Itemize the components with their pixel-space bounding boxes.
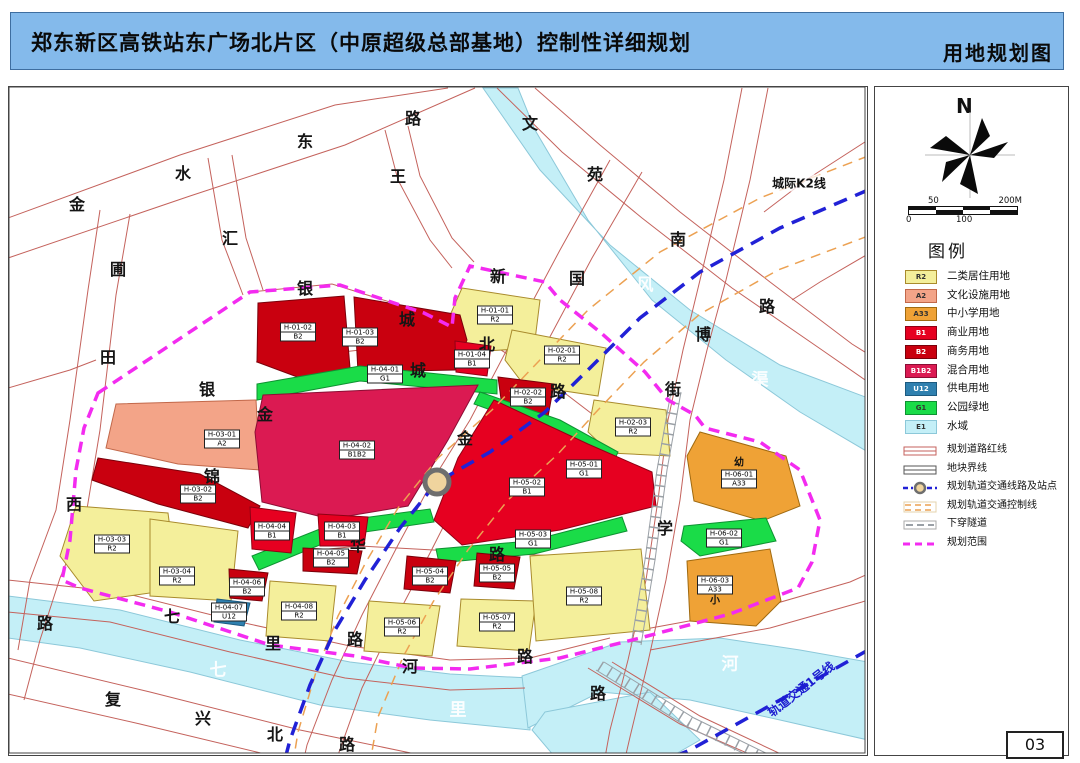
road-label: 路 — [339, 731, 355, 755]
road-label: 锦 — [204, 463, 220, 487]
legend-label-B1B2: 混合用地 — [947, 364, 989, 377]
road-label: 王 — [390, 163, 406, 187]
parcel-label-H-03-01: H-03-01A2 — [204, 430, 240, 449]
road-label: 兴 — [195, 705, 211, 729]
road-label: 路 — [517, 643, 533, 667]
road-label: 路 — [590, 680, 606, 704]
legend-label-R2: 二类居住用地 — [947, 270, 1010, 283]
parcel-label-H-01-01: H-01-01R2 — [477, 306, 513, 325]
road-label: 田 — [100, 344, 116, 368]
legend-label-block_line: 地块界线 — [947, 462, 987, 475]
scale-0: 0 — [906, 215, 911, 225]
parcel-label-H-04-03: H-04-03B1 — [324, 522, 360, 541]
road-label: 博 — [695, 321, 711, 345]
road-label: 汇 — [222, 225, 238, 249]
legend-label-rail_control: 规划轨道交通控制线 — [947, 499, 1037, 512]
road-label: 路 — [759, 293, 775, 317]
water-label: 河 — [722, 650, 739, 675]
road-label: 城 — [399, 306, 415, 330]
legend-swatch-B1: B1 — [905, 326, 937, 340]
legend-label-U12: 供电用地 — [947, 382, 989, 395]
legend-swatch-B2: B2 — [905, 345, 937, 359]
road-label: 北 — [267, 721, 283, 745]
sheet-subtitle: 用地规划图 — [943, 37, 1053, 66]
legend-label-B1: 商业用地 — [947, 326, 989, 339]
parcel-label-H-01-03: H-01-03B2 — [342, 328, 378, 347]
parcel-label-H-05-04: H-05-04B2 — [412, 567, 448, 586]
road-label: 圃 — [110, 256, 126, 280]
scale-200m: 200M — [998, 196, 1022, 206]
road-label: 路 — [489, 541, 505, 565]
legend-swatch-B1B2: B1B2 — [905, 364, 937, 378]
water-label: 七 — [210, 656, 227, 681]
road-label: 复 — [105, 686, 121, 710]
road-label: 路 — [405, 105, 421, 129]
legend-symbol-road_red — [903, 443, 937, 457]
parcel-label-H-04-07: H-04-07U12 — [211, 603, 247, 622]
map-frame — [8, 86, 868, 756]
parcel-label-H-06-02: H-06-02G1 — [706, 529, 742, 548]
road-label: 水 — [175, 160, 191, 184]
legend-symbol-tunnel — [903, 517, 937, 531]
road-label: 城 — [410, 357, 426, 381]
road-label: 苑 — [587, 161, 603, 185]
page-number: 03 — [1006, 731, 1064, 759]
road-label: 街 — [665, 376, 681, 400]
parcel-label-H-05-02: H-05-02B1 — [509, 478, 545, 497]
parcel-label-H-05-03: H-05-03G1 — [515, 530, 551, 549]
road-label: 七 — [164, 603, 180, 627]
parcel-label-H-01-04: H-01-04B1 — [454, 350, 490, 369]
parcel-label-H-03-03: H-03-03R2 — [94, 535, 130, 554]
legend-title: 图例 — [928, 237, 968, 262]
road-label: 国 — [569, 265, 585, 289]
road-label: 路 — [550, 378, 566, 402]
parcel-label-H-06-03: H-06-03A33 — [697, 576, 733, 595]
parcel-label-H-05-07: H-05-07R2 — [479, 613, 515, 632]
road-label: 银 — [297, 275, 313, 299]
parcel-label-H-05-01: H-05-01G1 — [566, 460, 602, 479]
parcel-label-H-02-03: H-02-03R2 — [615, 418, 651, 437]
water-label: 里 — [450, 696, 467, 721]
compass-icon — [920, 110, 1020, 200]
parcel-label-H-03-02: H-03-02B2 — [180, 485, 216, 504]
legend-label-tunnel: 下穿隧道 — [947, 517, 987, 530]
road-label: 文 — [522, 110, 538, 134]
parcel-label-H-03-04: H-03-04R2 — [159, 567, 195, 586]
legend-swatch-E1: E1 — [905, 420, 937, 434]
road-label: 金 — [69, 191, 85, 215]
road-label: 西 — [66, 491, 82, 515]
parcel-label-H-04-05: H-04-05B2 — [313, 549, 349, 568]
parcel-label-H-02-01: H-02-01R2 — [544, 346, 580, 365]
legend-label-A2: 文化设施用地 — [947, 289, 1010, 302]
legend-label-E1: 水域 — [947, 420, 968, 433]
legend-label-rail_station: 规划轨道交通线路及站点 — [947, 480, 1057, 493]
legend-symbol-boundary — [903, 536, 937, 550]
road-label: 东 — [297, 128, 313, 152]
road-label: 南 — [670, 226, 686, 250]
plan-sheet: { "header": { "title": "郑东新区高铁站东广场北片区（中原… — [0, 0, 1080, 763]
legend-symbol-block_line — [903, 462, 937, 476]
scale-100: 100 — [956, 215, 972, 225]
parcel-label-H-06-01: H-06-01A33 — [721, 470, 757, 489]
parcel-label-H-04-08: H-04-08R2 — [281, 602, 317, 621]
road-label: 里 — [265, 630, 281, 654]
legend-label-G1: 公园绿地 — [947, 401, 989, 414]
legend-label-road_red: 规划道路红线 — [947, 443, 1007, 456]
parcel-label-H-02-02: H-02-02B2 — [510, 388, 546, 407]
legend-swatch-U12: U12 — [905, 382, 937, 396]
parcel-label-H-04-02: H-04-02B1B2 — [339, 441, 375, 460]
parcel-label-H-05-06: H-05-06R2 — [384, 618, 420, 637]
parcel-label-H-05-08: H-05-08R2 — [566, 587, 602, 606]
legend-label-boundary: 规划范围 — [947, 536, 987, 549]
parcel-label-H-04-06: H-04-06B2 — [229, 578, 265, 597]
road-label: 路 — [37, 610, 53, 634]
legend-symbol-rail_station — [903, 480, 937, 494]
road-label: 金 — [257, 401, 273, 425]
water-label: 渠 — [752, 366, 769, 391]
road-label: 银 — [199, 376, 215, 400]
legend-symbol-rail_control — [903, 499, 937, 513]
legend-label-A33: 中小学用地 — [947, 307, 1000, 320]
parcel-label-H-04-01: H-04-01G1 — [367, 365, 403, 384]
legend-swatch-R2: R2 — [905, 270, 937, 284]
road-label: 金 — [457, 425, 473, 449]
legend-swatch-A2: A2 — [905, 289, 937, 303]
school-mark: 幼 — [734, 454, 744, 469]
scale-50: 50 — [928, 196, 939, 206]
legend-label-B2: 商务用地 — [947, 345, 989, 358]
legend-swatch-A33: A33 — [905, 307, 937, 321]
water-label: 风 — [637, 271, 654, 296]
scale-bar: 50 200M 0 100 — [906, 196, 1022, 224]
road-label: 河 — [402, 653, 418, 677]
road-label: 路 — [347, 626, 363, 650]
parcel-label-H-04-04: H-04-04B1 — [254, 522, 290, 541]
legend-swatch-G1: G1 — [905, 401, 937, 415]
rail-label: 城际K2线 — [770, 175, 828, 192]
water-label: 东 — [537, 200, 554, 225]
parcel-label-H-01-02: H-01-02B2 — [280, 323, 316, 342]
sheet-title: 郑东新区高铁站东广场北片区（中原超级总部基地）控制性详细规划 — [31, 27, 691, 57]
road-label: 学 — [657, 515, 673, 539]
title-banner: 郑东新区高铁站东广场北片区（中原超级总部基地）控制性详细规划 用地规划图 — [10, 12, 1064, 70]
parcel-label-H-05-05: H-05-05B2 — [479, 564, 515, 583]
road-label: 新 — [490, 263, 506, 287]
